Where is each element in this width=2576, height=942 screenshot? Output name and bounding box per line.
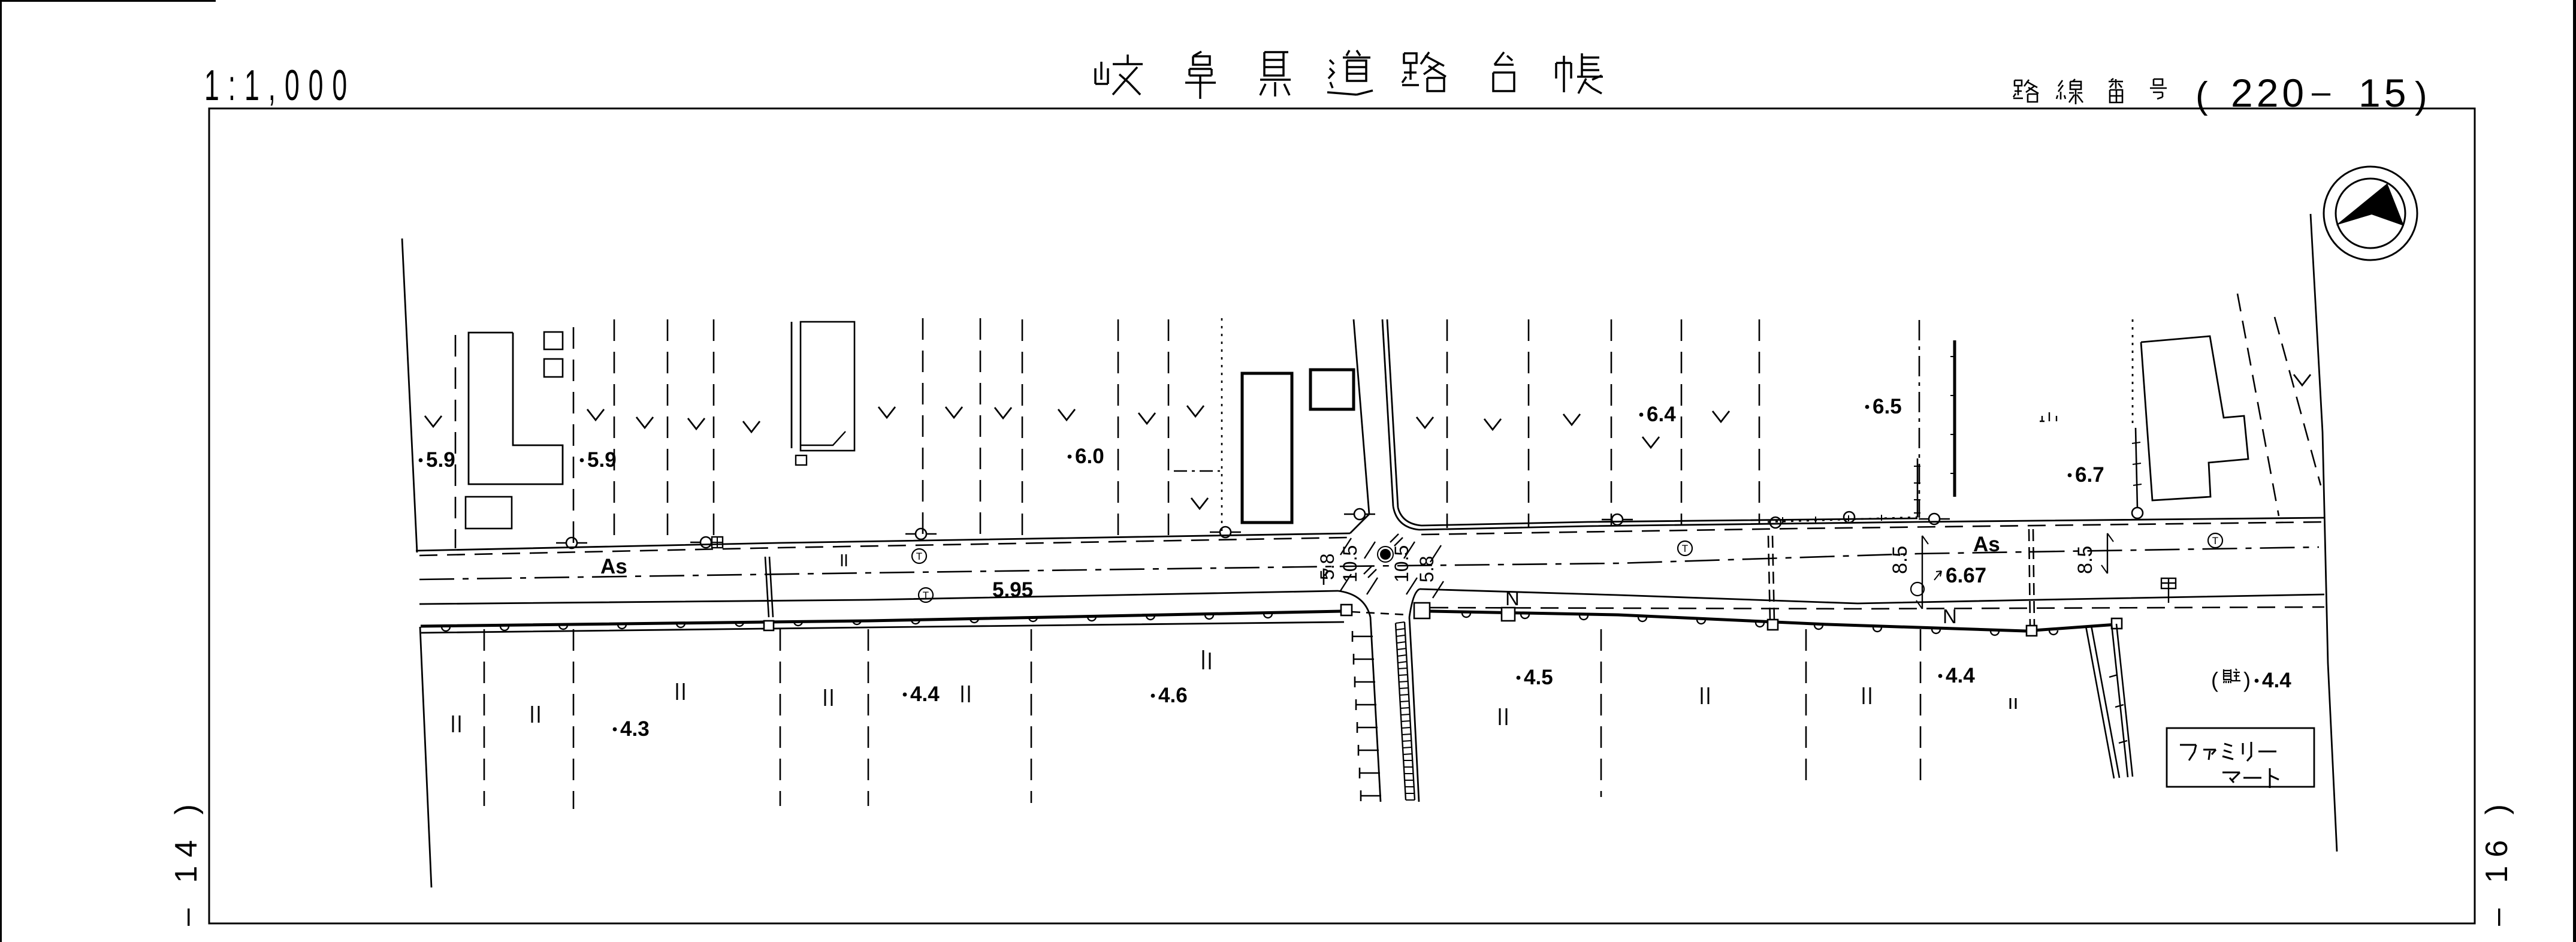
svg-text:4.3: 4.3 <box>620 717 650 741</box>
svg-text:– 14 ): – 14 ) <box>169 796 204 926</box>
svg-text:4.4: 4.4 <box>2262 669 2291 692</box>
svg-text:8.5: 8.5 <box>1889 546 1911 574</box>
svg-text:5.95: 5.95 <box>992 578 1033 602</box>
svg-text:As: As <box>600 555 627 578</box>
svg-text:): ) <box>2243 668 2251 692</box>
svg-text:4.6: 4.6 <box>1158 684 1188 707</box>
svg-text:6.0: 6.0 <box>1075 445 1104 468</box>
svg-text:1:1,000: 1:1,000 <box>204 61 356 110</box>
svg-text:T: T <box>1682 543 1688 554</box>
svg-text:6.7: 6.7 <box>2075 463 2104 487</box>
svg-text:N: N <box>1943 605 1957 627</box>
svg-text:–: – <box>2312 73 2331 110</box>
svg-text:8.5: 8.5 <box>2074 546 2097 574</box>
svg-text:5.8: 5.8 <box>1416 556 1438 582</box>
svg-text:220: 220 <box>2231 71 2308 115</box>
svg-text:4.4: 4.4 <box>910 683 940 706</box>
svg-text:– 16 ): – 16 ) <box>2480 796 2514 926</box>
svg-text:5.9: 5.9 <box>426 448 455 472</box>
svg-text:6.67: 6.67 <box>1946 564 1986 587</box>
svg-text:T: T <box>2212 535 2218 547</box>
svg-text:4.4: 4.4 <box>1946 664 1975 687</box>
svg-text:6.5: 6.5 <box>1873 395 1902 418</box>
svg-text:4.5: 4.5 <box>1524 666 1553 689</box>
svg-text:6.4: 6.4 <box>1647 403 1676 426</box>
svg-text:As: As <box>1973 533 2000 556</box>
svg-text:(: ( <box>2211 668 2218 692</box>
svg-text:5.8: 5.8 <box>1316 554 1338 580</box>
svg-text:T: T <box>923 590 929 601</box>
svg-text:): ) <box>2415 75 2427 116</box>
svg-text:N: N <box>1505 587 1520 609</box>
svg-text:T: T <box>916 551 922 562</box>
svg-text:5.9: 5.9 <box>587 448 617 472</box>
svg-text:(: ( <box>2196 75 2208 116</box>
svg-text:15: 15 <box>2358 71 2409 115</box>
